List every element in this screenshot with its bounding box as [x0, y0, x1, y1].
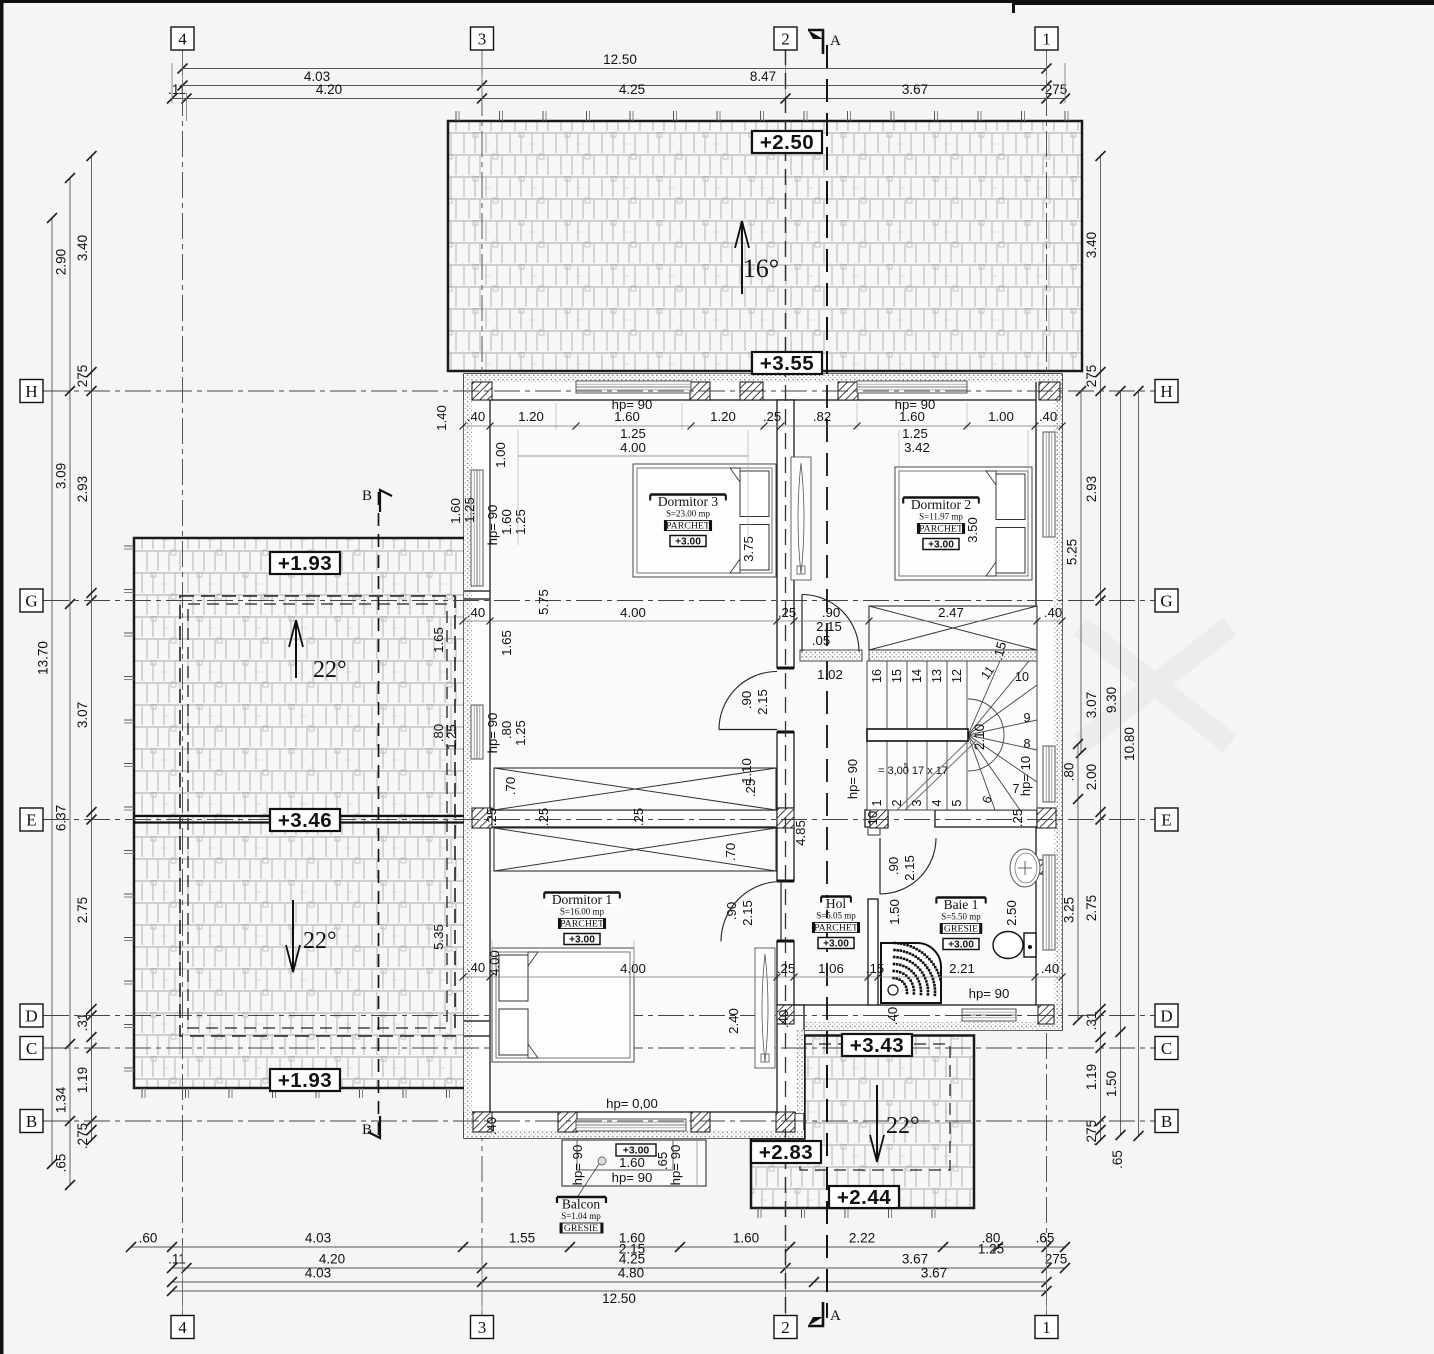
svg-text:2: 2 [781, 30, 790, 49]
svg-text:B: B [1161, 1112, 1172, 1131]
svg-text:1.40: 1.40 [434, 405, 449, 431]
svg-text:Baie 1: Baie 1 [944, 897, 979, 912]
svg-text:.90: .90 [724, 902, 739, 920]
svg-text:G: G [25, 592, 37, 611]
svg-text:2.15: 2.15 [902, 855, 917, 881]
svg-text:.40: .40 [776, 1010, 791, 1028]
svg-text:A: A [830, 33, 841, 49]
svg-text:+3.00: +3.00 [823, 938, 849, 949]
svg-text:hp= 90: hp= 90 [969, 986, 1010, 1001]
svg-text:+3.00: +3.00 [623, 1145, 650, 1157]
svg-text:GRESIE: GRESIE [564, 1223, 598, 1234]
svg-text:1: 1 [870, 799, 884, 806]
svg-text:275: 275 [75, 365, 90, 388]
svg-text:PARCHET: PARCHET [919, 524, 963, 535]
svg-text:1.50: 1.50 [887, 899, 902, 925]
svg-text:.70: .70 [503, 777, 518, 795]
svg-text:10: 10 [1015, 670, 1029, 684]
svg-text:1.25: 1.25 [902, 426, 928, 441]
svg-text:3.40: 3.40 [75, 235, 90, 261]
svg-text:4.00: 4.00 [620, 440, 646, 455]
svg-text:4: 4 [178, 1318, 187, 1337]
svg-text:3: 3 [478, 30, 487, 49]
svg-text:1.25: 1.25 [620, 426, 646, 441]
svg-text:.65: .65 [1036, 1231, 1055, 1246]
svg-text:10.80: 10.80 [1122, 727, 1137, 761]
svg-text:3.42: 3.42 [904, 440, 930, 455]
svg-text:4.25: 4.25 [619, 82, 645, 97]
svg-text:+3.00: +3.00 [948, 939, 974, 950]
svg-text:GRESIE: GRESIE [944, 924, 978, 935]
svg-text:275: 275 [1084, 365, 1099, 388]
svg-text:1.60: 1.60 [733, 1231, 759, 1246]
svg-text:+1.93: +1.93 [278, 552, 332, 575]
svg-text:C: C [1161, 1039, 1172, 1058]
svg-text:4.25: 4.25 [619, 1252, 645, 1267]
svg-text:S=5.50 mp: S=5.50 mp [941, 912, 981, 922]
svg-text:2.93: 2.93 [1084, 476, 1099, 502]
svg-text:6.37: 6.37 [54, 805, 69, 831]
svg-text:S=23.00 mp: S=23.00 mp [666, 509, 711, 519]
svg-text:+3.00: +3.00 [569, 934, 595, 945]
svg-text:4: 4 [930, 799, 944, 806]
svg-text:1.65: 1.65 [431, 627, 446, 653]
svg-text:D: D [1160, 1007, 1172, 1026]
svg-text:1.25: 1.25 [444, 724, 459, 750]
svg-text:.05: .05 [812, 633, 830, 648]
svg-text:1.19: 1.19 [75, 1067, 90, 1093]
svg-text:+2.44: +2.44 [837, 1186, 891, 1209]
svg-text:Dormitor 1: Dormitor 1 [552, 892, 612, 907]
svg-text:5.25: 5.25 [1065, 539, 1080, 565]
svg-text:+3.46: +3.46 [278, 809, 332, 832]
svg-text:2.22: 2.22 [849, 1231, 875, 1246]
svg-text:4.20: 4.20 [316, 82, 342, 97]
svg-text:2.90: 2.90 [54, 249, 69, 275]
svg-text:5: 5 [950, 799, 964, 806]
svg-text:3.07: 3.07 [1084, 692, 1099, 718]
svg-text:4.85: 4.85 [793, 820, 808, 846]
svg-text:4: 4 [178, 30, 187, 49]
svg-text:1.60: 1.60 [619, 1155, 645, 1170]
svg-text:15: 15 [890, 669, 904, 683]
svg-text:A: A [830, 1308, 841, 1324]
svg-text:1.02: 1.02 [817, 667, 843, 682]
svg-text:13.70: 13.70 [36, 641, 51, 675]
svg-text:H: H [1160, 382, 1172, 401]
svg-text:.25: .25 [484, 808, 499, 826]
svg-text:.65: .65 [54, 1154, 69, 1173]
svg-text:1.60: 1.60 [899, 409, 925, 424]
svg-text:5.35: 5.35 [431, 924, 446, 950]
svg-text:1.06: 1.06 [818, 961, 844, 976]
svg-text:1.19: 1.19 [1084, 1064, 1099, 1090]
svg-text:1.60: 1.60 [499, 509, 514, 535]
svg-text:.40: .40 [885, 1007, 900, 1025]
svg-text:G: G [1160, 592, 1172, 611]
svg-text:5.75: 5.75 [536, 589, 551, 615]
svg-text:9.30: 9.30 [1104, 687, 1119, 713]
svg-text:+2.83: +2.83 [759, 1141, 813, 1164]
svg-text:S=16.00 mp: S=16.00 mp [560, 907, 605, 917]
svg-text:.25: .25 [1010, 809, 1025, 827]
svg-text:2.10: 2.10 [972, 724, 987, 750]
svg-text:3.40: 3.40 [1084, 232, 1099, 258]
svg-text:1.25: 1.25 [462, 497, 477, 523]
svg-text:.25: .25 [536, 808, 551, 826]
svg-text:B: B [26, 1112, 37, 1131]
svg-text:.90: .90 [739, 691, 754, 709]
svg-text:1.60: 1.60 [614, 409, 640, 424]
svg-text:S=5.05 mp: S=5.05 mp [816, 911, 856, 921]
svg-text:.90: .90 [886, 857, 901, 875]
svg-text:.60: .60 [139, 1231, 158, 1246]
svg-text:.82: .82 [813, 409, 831, 424]
svg-text:1.00: 1.00 [988, 409, 1014, 424]
svg-text:H: H [25, 382, 37, 401]
svg-text:22°: 22° [303, 928, 337, 954]
svg-text:3: 3 [478, 1318, 487, 1337]
svg-text:.25: .25 [763, 409, 781, 424]
svg-text:2: 2 [890, 799, 904, 806]
svg-text:1.25: 1.25 [513, 509, 528, 535]
svg-text:2.21: 2.21 [949, 961, 975, 976]
svg-text:hp= 90: hp= 90 [570, 1145, 585, 1186]
svg-text:B: B [362, 1122, 372, 1138]
svg-text:22°: 22° [886, 1113, 920, 1139]
svg-text:hp= 90: hp= 90 [668, 1145, 683, 1186]
svg-text:.40: .40 [467, 409, 485, 424]
svg-text:.25: .25 [631, 808, 646, 826]
svg-text:3.75: 3.75 [741, 536, 756, 562]
svg-text:2.40: 2.40 [726, 1008, 741, 1034]
svg-text:2.75: 2.75 [75, 897, 90, 923]
svg-text:1.20: 1.20 [710, 409, 736, 424]
svg-text:4.03: 4.03 [305, 1266, 331, 1281]
svg-text:PARCHET: PARCHET [666, 521, 710, 532]
svg-text:S=1.04 mp: S=1.04 mp [561, 1211, 601, 1221]
svg-text:275: 275 [1045, 1252, 1068, 1267]
svg-text:.11: .11 [168, 1252, 186, 1267]
svg-text:1.25: 1.25 [978, 1242, 1004, 1257]
svg-text:14: 14 [910, 669, 924, 683]
svg-text:1.65: 1.65 [499, 630, 514, 656]
svg-text:.65: .65 [655, 1152, 670, 1170]
svg-text:1.20: 1.20 [518, 409, 544, 424]
svg-text:4.03: 4.03 [305, 1231, 331, 1246]
svg-text:+3.43: +3.43 [850, 1034, 904, 1057]
svg-text:C: C [26, 1039, 37, 1058]
svg-text:1.00: 1.00 [493, 442, 508, 468]
svg-text:2.93: 2.93 [75, 476, 90, 502]
svg-text:2.75: 2.75 [1084, 895, 1099, 921]
svg-text:hp= 90: hp= 90 [845, 759, 860, 799]
svg-text:3: 3 [910, 799, 924, 806]
svg-text:.40: .40 [1041, 961, 1059, 976]
svg-text:4.80: 4.80 [618, 1266, 644, 1281]
svg-text:hp= 0,00: hp= 0,00 [606, 1096, 658, 1111]
svg-text:3.25: 3.25 [1062, 897, 1077, 923]
svg-text:= 3,00 17 x 17: = 3,00 17 x 17 [878, 765, 948, 777]
svg-text:Balcon: Balcon [562, 1197, 600, 1212]
svg-text:1.60: 1.60 [448, 498, 463, 524]
svg-text:3.09: 3.09 [54, 463, 69, 489]
svg-text:.40: .40 [1044, 605, 1062, 620]
svg-text:1: 1 [1042, 30, 1051, 49]
svg-text:.70: .70 [723, 843, 738, 861]
svg-text:8: 8 [1024, 737, 1031, 751]
svg-text:9: 9 [1024, 711, 1031, 725]
svg-text:3.67: 3.67 [902, 82, 928, 97]
svg-text:D: D [25, 1007, 37, 1026]
svg-text:B: B [362, 488, 372, 504]
svg-text:+1.93: +1.93 [278, 1069, 332, 1092]
svg-text:1: 1 [1042, 1318, 1051, 1337]
svg-text:4.00: 4.00 [487, 950, 502, 976]
svg-text:.80: .80 [499, 721, 514, 739]
svg-text:+3.00: +3.00 [928, 539, 954, 550]
svg-text:.275: .275 [75, 1123, 90, 1149]
svg-text:.90: .90 [822, 605, 840, 620]
svg-text:12: 12 [950, 669, 964, 683]
svg-text:2.47: 2.47 [938, 605, 964, 620]
svg-text:+3.00: +3.00 [675, 536, 701, 547]
svg-text:.40: .40 [1039, 409, 1057, 424]
svg-text:22°: 22° [313, 657, 347, 683]
svg-text:2.00: 2.00 [1084, 764, 1099, 790]
svg-text:PARCHET: PARCHET [560, 919, 604, 930]
svg-text:.40: .40 [467, 605, 485, 620]
svg-text:hp= 90: hp= 90 [485, 505, 500, 546]
svg-text:.10: .10 [865, 811, 880, 829]
svg-text:.275: .275 [1084, 1120, 1099, 1146]
svg-text:Dormitor 2: Dormitor 2 [911, 497, 971, 512]
svg-text:.25: .25 [743, 779, 758, 797]
svg-text:2.15: 2.15 [755, 689, 770, 715]
svg-text:2: 2 [781, 1318, 790, 1337]
svg-text:4.00: 4.00 [620, 961, 646, 976]
svg-text:1.50: 1.50 [1104, 1071, 1119, 1097]
svg-text:E: E [1161, 811, 1171, 830]
svg-text:PARCHET: PARCHET [814, 923, 858, 934]
svg-text:E: E [26, 811, 36, 830]
svg-text:3.50: 3.50 [965, 517, 980, 543]
svg-text:hp= 90: hp= 90 [485, 713, 500, 754]
svg-text:4.20: 4.20 [319, 1252, 345, 1267]
svg-text:12.50: 12.50 [603, 52, 637, 67]
svg-text:1.55: 1.55 [509, 1231, 535, 1246]
svg-text:1.34: 1.34 [54, 1086, 69, 1113]
svg-text:+2.50: +2.50 [760, 131, 814, 154]
svg-text:4.00: 4.00 [620, 605, 646, 620]
svg-text:5: 5 [904, 761, 908, 770]
svg-text:Hol: Hol [826, 896, 846, 911]
svg-text:2.50: 2.50 [1004, 900, 1019, 926]
svg-text:1.25: 1.25 [513, 720, 528, 746]
svg-text:3.67: 3.67 [902, 1252, 928, 1267]
svg-text:.80: .80 [1062, 763, 1077, 782]
svg-text:.11: .11 [168, 82, 186, 97]
svg-text:Dormitor 3: Dormitor 3 [658, 494, 719, 509]
svg-text:3.67: 3.67 [921, 1266, 947, 1281]
svg-text:8.47: 8.47 [750, 69, 776, 84]
svg-text:3.07: 3.07 [75, 702, 90, 728]
svg-text:16°: 16° [743, 254, 779, 283]
svg-text:.31: .31 [1084, 1012, 1099, 1031]
svg-text:2.15: 2.15 [740, 900, 755, 926]
svg-text:S=11.97 mp: S=11.97 mp [919, 512, 963, 522]
svg-text:13: 13 [930, 669, 944, 683]
svg-text:.40: .40 [484, 1117, 499, 1135]
svg-text:hp= 90: hp= 90 [612, 1170, 653, 1185]
svg-text:12.50: 12.50 [602, 1291, 636, 1306]
svg-text:16: 16 [870, 669, 884, 683]
svg-text:.65: .65 [1110, 1150, 1125, 1169]
svg-text:+3.55: +3.55 [760, 352, 814, 375]
svg-text:.40: .40 [467, 960, 485, 975]
svg-text:275: 275 [1045, 82, 1068, 97]
svg-text:hp= 10: hp= 10 [1018, 756, 1033, 796]
